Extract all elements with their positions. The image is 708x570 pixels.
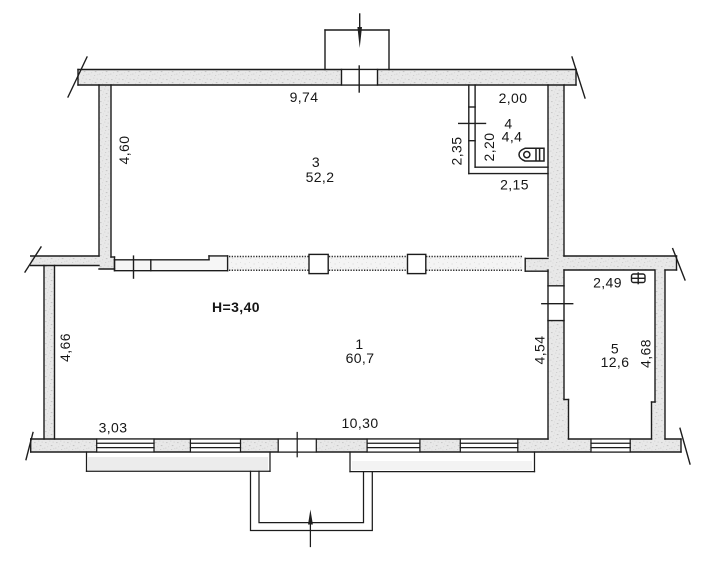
svg-text:2,35: 2,35 bbox=[449, 137, 465, 166]
svg-text:H=3,40: H=3,40 bbox=[212, 299, 260, 315]
svg-text:3,03: 3,03 bbox=[99, 420, 128, 436]
svg-text:52,2: 52,2 bbox=[306, 169, 335, 185]
svg-text:10,30: 10,30 bbox=[341, 415, 378, 431]
svg-text:4,66: 4,66 bbox=[57, 333, 73, 362]
svg-text:2,15: 2,15 bbox=[500, 177, 529, 193]
svg-text:4,54: 4,54 bbox=[532, 336, 548, 365]
svg-text:12,6: 12,6 bbox=[601, 354, 630, 370]
svg-text:4,68: 4,68 bbox=[638, 339, 654, 368]
svg-text:4,4: 4,4 bbox=[502, 129, 523, 145]
svg-text:60,7: 60,7 bbox=[346, 350, 375, 366]
svg-text:9,74: 9,74 bbox=[290, 89, 319, 105]
svg-text:2,49: 2,49 bbox=[593, 275, 622, 291]
svg-text:2,20: 2,20 bbox=[481, 133, 497, 162]
svg-text:3: 3 bbox=[312, 154, 320, 170]
svg-text:2,00: 2,00 bbox=[499, 90, 528, 106]
svg-text:4,60: 4,60 bbox=[116, 136, 132, 165]
